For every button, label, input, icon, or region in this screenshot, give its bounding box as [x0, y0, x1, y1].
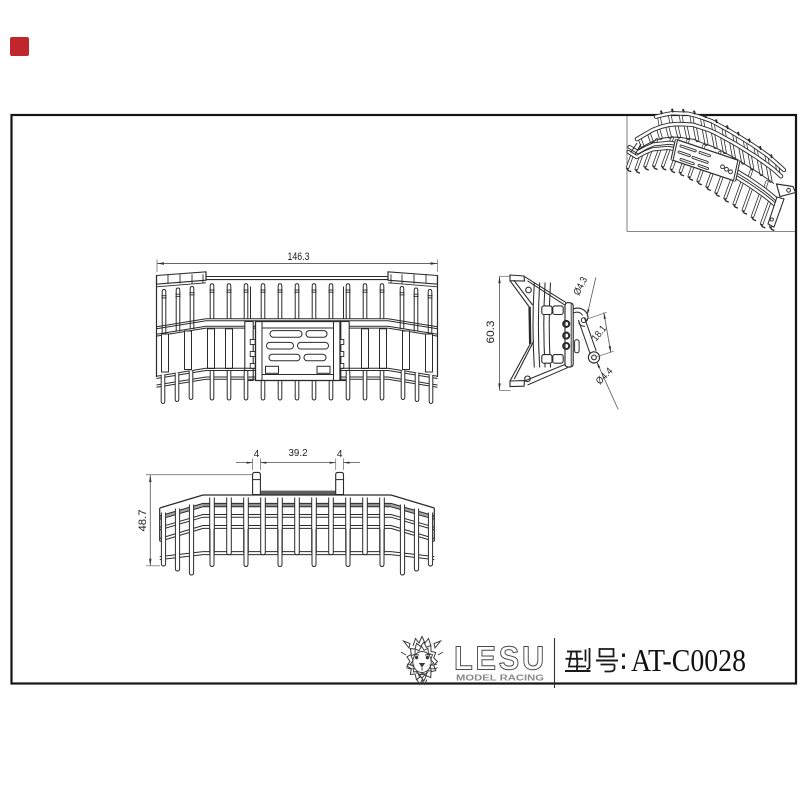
svg-text:39.2: 39.2	[289, 447, 308, 459]
svg-text:48.7: 48.7	[137, 510, 149, 532]
svg-text:MODEL RACING: MODEL RACING	[456, 674, 544, 683]
svg-text:AT-C0028: AT-C0028	[631, 643, 746, 678]
svg-text:4: 4	[254, 449, 260, 460]
svg-text:60.3: 60.3	[485, 321, 497, 344]
svg-text:146.3: 146.3	[288, 251, 310, 263]
svg-text:LESU: LESU	[454, 640, 547, 677]
svg-text:4: 4	[337, 449, 343, 460]
